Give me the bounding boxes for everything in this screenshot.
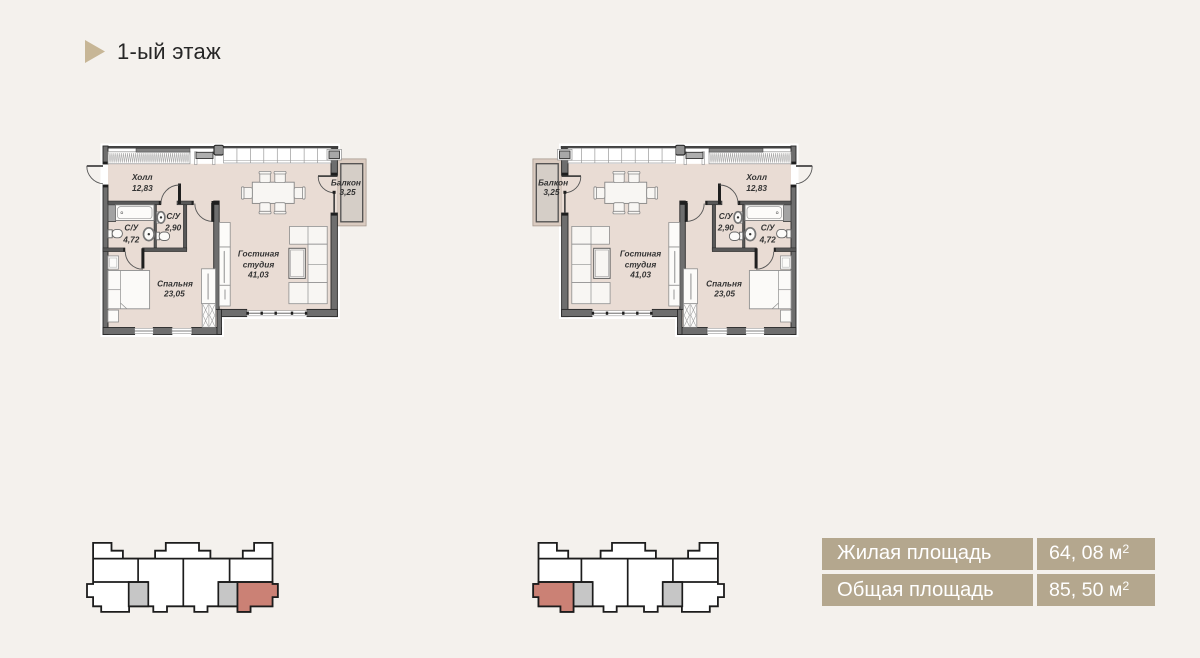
svg-text:Балкон: Балкон xyxy=(331,177,361,187)
svg-text:3,25: 3,25 xyxy=(543,187,560,197)
svg-text:Спальня: Спальня xyxy=(157,278,193,288)
svg-text:4,72: 4,72 xyxy=(122,234,140,244)
svg-text:41,03: 41,03 xyxy=(247,269,269,279)
svg-text:Балкон: Балкон xyxy=(538,177,568,187)
svg-text:С/У: С/У xyxy=(124,223,139,233)
svg-text:С/У: С/У xyxy=(719,211,734,221)
svg-text:Спальня: Спальня xyxy=(706,278,742,288)
svg-text:С/У: С/У xyxy=(166,211,181,221)
svg-text:Гостиная: Гостиная xyxy=(620,249,661,259)
svg-text:2,90: 2,90 xyxy=(164,223,182,233)
svg-text:12,83: 12,83 xyxy=(132,183,153,193)
svg-text:2,90: 2,90 xyxy=(717,223,735,233)
svg-text:Холл: Холл xyxy=(131,172,153,182)
svg-text:Холл: Холл xyxy=(745,172,767,182)
svg-text:С/У: С/У xyxy=(761,223,776,233)
svg-text:23,05: 23,05 xyxy=(163,289,185,299)
svg-text:4,72: 4,72 xyxy=(759,234,777,244)
svg-text:12,83: 12,83 xyxy=(746,183,767,193)
svg-text:студия: студия xyxy=(243,259,275,269)
svg-text:41,03: 41,03 xyxy=(629,269,651,279)
svg-text:23,05: 23,05 xyxy=(713,289,735,299)
svg-text:Гостиная: Гостиная xyxy=(238,249,279,259)
svg-text:3,25: 3,25 xyxy=(340,187,357,197)
svg-text:студия: студия xyxy=(625,259,657,269)
